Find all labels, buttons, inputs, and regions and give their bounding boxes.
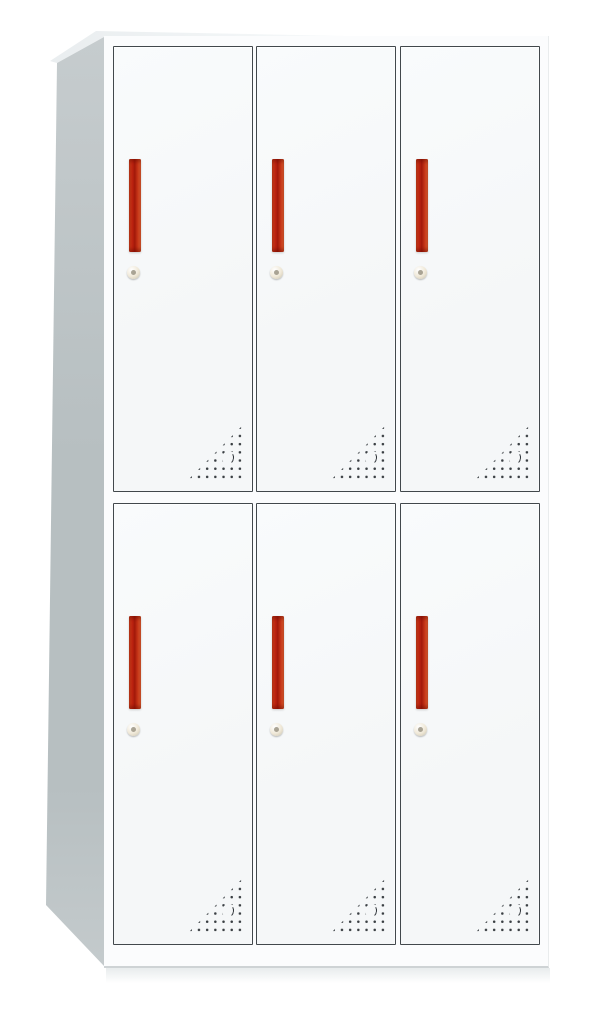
vent-crescent-cutout xyxy=(509,904,523,918)
crescent-arc xyxy=(511,451,522,464)
locker-door-r1-c1 xyxy=(113,46,253,492)
door-lock xyxy=(270,266,283,279)
locker-door-r2-c2 xyxy=(256,503,396,945)
crescent-arc xyxy=(511,904,522,917)
door-lock xyxy=(414,723,427,736)
door-handle xyxy=(416,616,428,709)
keyhole xyxy=(274,727,279,732)
door-lock xyxy=(414,266,427,279)
door-handle xyxy=(416,159,428,252)
crescent-arc xyxy=(224,451,235,464)
crescent-arc xyxy=(224,904,235,917)
vent-holes xyxy=(187,877,244,934)
vent-holes xyxy=(474,877,531,934)
vent-crescent-cutout xyxy=(365,904,379,918)
keyhole xyxy=(131,727,136,732)
vent-holes xyxy=(330,424,387,481)
keyhole xyxy=(131,270,136,275)
keyhole xyxy=(418,270,423,275)
door-lock xyxy=(270,723,283,736)
locker-door-r2-c1 xyxy=(113,503,253,945)
door-handle xyxy=(272,159,284,252)
door-handle xyxy=(129,616,141,709)
cabinet-front xyxy=(104,36,549,968)
vent-holes xyxy=(330,877,387,934)
locker-door-r2-c3 xyxy=(400,503,540,945)
vent-crescent-cutout xyxy=(222,904,236,918)
floor-shadow xyxy=(106,968,550,983)
locker-door-r1-c2 xyxy=(256,46,396,492)
door-lock xyxy=(127,266,140,279)
product-photo-canvas xyxy=(0,0,605,1009)
door-handle xyxy=(129,159,141,252)
keyhole xyxy=(274,270,279,275)
vent-holes xyxy=(187,424,244,481)
keyhole xyxy=(418,727,423,732)
locker-door-r1-c3 xyxy=(400,46,540,492)
crescent-arc xyxy=(367,451,378,464)
door-handle xyxy=(272,616,284,709)
vent-crescent-cutout xyxy=(222,451,236,465)
vent-holes xyxy=(474,424,531,481)
vent-crescent-cutout xyxy=(509,451,523,465)
door-lock xyxy=(127,723,140,736)
door-grid xyxy=(113,46,540,945)
crescent-arc xyxy=(367,904,378,917)
vent-crescent-cutout xyxy=(365,451,379,465)
